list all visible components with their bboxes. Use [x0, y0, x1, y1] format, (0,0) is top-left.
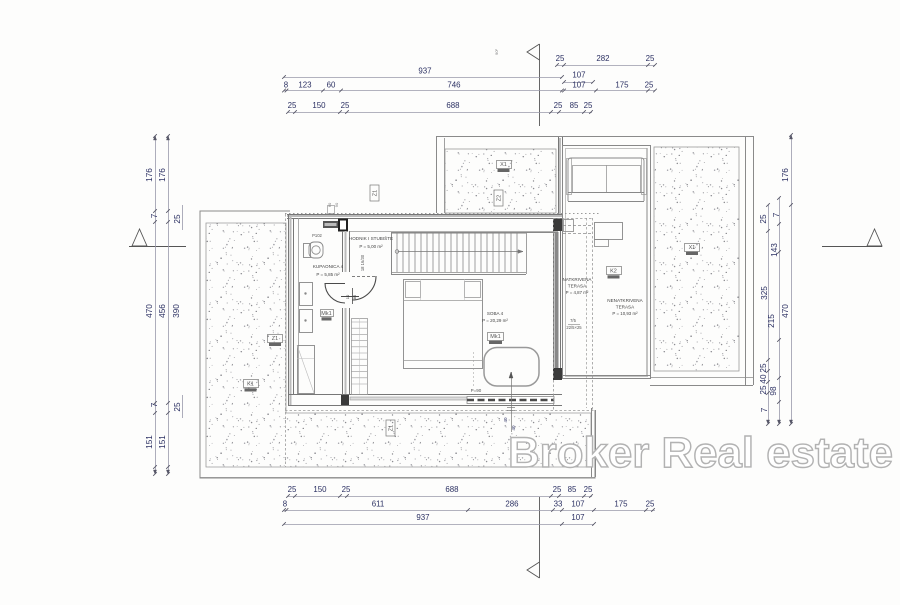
- svg-text:7: 7: [772, 212, 781, 217]
- svg-text:98: 98: [769, 386, 778, 396]
- svg-text:85: 85: [568, 485, 577, 494]
- svg-text:K2: K2: [610, 269, 617, 275]
- svg-text:Mk1: Mk1: [490, 334, 500, 340]
- svg-text:33: 33: [554, 500, 563, 509]
- svg-text:Broker Real estate: Broker Real estate: [508, 430, 893, 477]
- svg-text:456: 456: [158, 304, 167, 318]
- svg-text:937: 937: [416, 513, 429, 522]
- svg-text:40: 40: [759, 374, 768, 384]
- svg-text:8: 8: [284, 81, 289, 90]
- svg-text:Z2: Z2: [497, 195, 503, 201]
- svg-text:143: 143: [770, 243, 779, 257]
- svg-text:25: 25: [173, 214, 182, 224]
- svg-text:P = 5,00 m²: P = 5,00 m²: [359, 244, 383, 249]
- svg-text:470: 470: [781, 304, 790, 318]
- svg-text:P102: P102: [312, 233, 322, 238]
- svg-text:107: 107: [572, 81, 585, 90]
- svg-text:X1: X1: [500, 162, 507, 168]
- svg-text:25: 25: [553, 485, 562, 494]
- svg-text:25: 25: [759, 385, 768, 395]
- svg-text:K1: K1: [247, 382, 254, 388]
- svg-text:25: 25: [759, 214, 768, 224]
- svg-text:25: 25: [556, 54, 565, 63]
- svg-text:746: 746: [447, 81, 461, 90]
- svg-text:HODNIK I STUBIŠTE: HODNIK I STUBIŠTE: [349, 235, 393, 241]
- svg-text:Mk1: Mk1: [321, 311, 331, 317]
- svg-text:215: 215: [767, 314, 776, 328]
- svg-text:688: 688: [446, 101, 460, 110]
- svg-text:P = 4,87 m²: P = 4,87 m²: [566, 290, 589, 295]
- svg-text:25: 25: [554, 101, 563, 110]
- svg-text:22/5×25: 22/5×25: [566, 325, 582, 330]
- svg-text:90²: 90²: [494, 48, 499, 54]
- svg-text:7: 7: [150, 213, 159, 218]
- svg-text:25: 25: [759, 363, 768, 373]
- svg-text:25: 25: [646, 500, 655, 509]
- svg-text:937: 937: [418, 67, 431, 76]
- svg-text:SOBA 4: SOBA 4: [487, 311, 504, 316]
- svg-text:P = 5,85 m²: P = 5,85 m²: [316, 272, 340, 277]
- svg-text:25: 25: [646, 54, 655, 63]
- svg-text:611: 611: [372, 500, 385, 509]
- svg-text:NENATKRIVENA: NENATKRIVENA: [607, 298, 643, 303]
- svg-text:151: 151: [158, 435, 167, 449]
- svg-text:25: 25: [584, 485, 593, 494]
- svg-text:150: 150: [312, 101, 326, 110]
- svg-text:85: 85: [352, 294, 357, 299]
- svg-text:25: 25: [341, 101, 350, 110]
- svg-text:8: 8: [283, 500, 288, 509]
- svg-text:286: 286: [505, 500, 519, 509]
- svg-text:85: 85: [570, 101, 579, 110]
- svg-text:25: 25: [173, 402, 182, 412]
- svg-text:P=90: P=90: [471, 388, 482, 393]
- svg-text:470: 470: [145, 304, 154, 318]
- svg-text:25: 25: [288, 485, 297, 494]
- svg-text:151: 151: [145, 435, 154, 449]
- svg-text:25: 25: [584, 101, 593, 110]
- svg-text:25: 25: [288, 101, 297, 110]
- svg-text:60: 60: [327, 81, 336, 90]
- svg-text:X1: X1: [689, 245, 696, 251]
- svg-text:Z1: Z1: [272, 336, 278, 342]
- svg-text:7/5: 7/5: [570, 318, 576, 323]
- svg-text:325: 325: [760, 286, 769, 300]
- svg-text:107: 107: [571, 500, 584, 509]
- svg-text:175: 175: [615, 81, 629, 90]
- svg-text:Z1: Z1: [389, 425, 395, 431]
- svg-text:Z1: Z1: [373, 190, 379, 196]
- svg-text:P = 10,93 m²: P = 10,93 m²: [612, 311, 638, 316]
- svg-text:107: 107: [572, 71, 585, 80]
- svg-text:282: 282: [596, 54, 609, 63]
- svg-text:40: 40: [503, 417, 508, 423]
- svg-text:176: 176: [158, 168, 167, 182]
- svg-text:25: 25: [645, 81, 654, 90]
- svg-text:175: 175: [614, 500, 628, 509]
- svg-text:123: 123: [298, 81, 312, 90]
- svg-text:7: 7: [760, 407, 769, 412]
- svg-text:176: 176: [781, 168, 790, 182]
- svg-text:P = 20,29 m²: P = 20,29 m²: [482, 318, 508, 323]
- svg-text:150: 150: [313, 485, 327, 494]
- svg-text:688: 688: [445, 485, 459, 494]
- svg-text:390: 390: [172, 304, 181, 318]
- svg-text:10: 10: [345, 294, 350, 299]
- svg-text:NATKRIVENA: NATKRIVENA: [562, 277, 592, 282]
- svg-text:TERASA: TERASA: [568, 284, 587, 289]
- svg-text:KUPAONICA 4: KUPAONICA 4: [313, 264, 344, 269]
- svg-text:TERASA: TERASA: [616, 305, 635, 310]
- svg-text:7: 7: [150, 402, 159, 407]
- svg-text:18 16/30: 18 16/30: [360, 254, 365, 271]
- svg-text:25: 25: [342, 485, 351, 494]
- svg-text:107: 107: [571, 513, 584, 522]
- svg-text:176: 176: [145, 168, 154, 182]
